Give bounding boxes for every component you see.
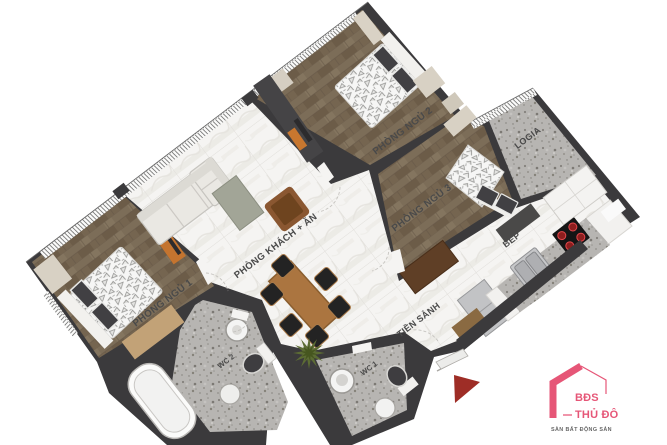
svg-text:THỦ ĐÔ: THỦ ĐÔ [575,408,619,421]
svg-text:BĐS: BĐS [575,392,599,404]
svg-text:SÀN BẤT ĐỘNG SẢN: SÀN BẤT ĐỘNG SẢN [551,425,612,433]
